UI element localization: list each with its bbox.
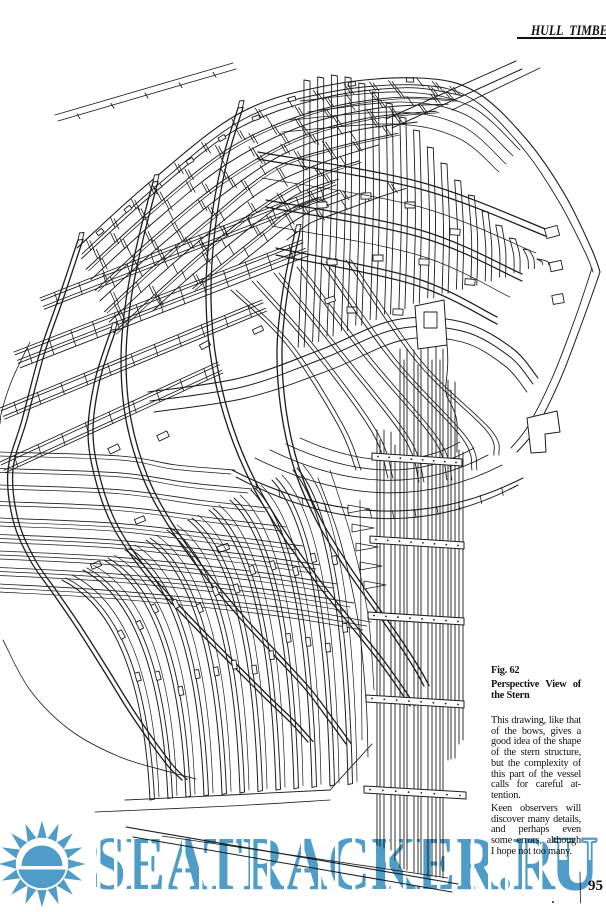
svg-text:SEATRACKER.R: SEATRACKER.R: [93, 822, 556, 906]
